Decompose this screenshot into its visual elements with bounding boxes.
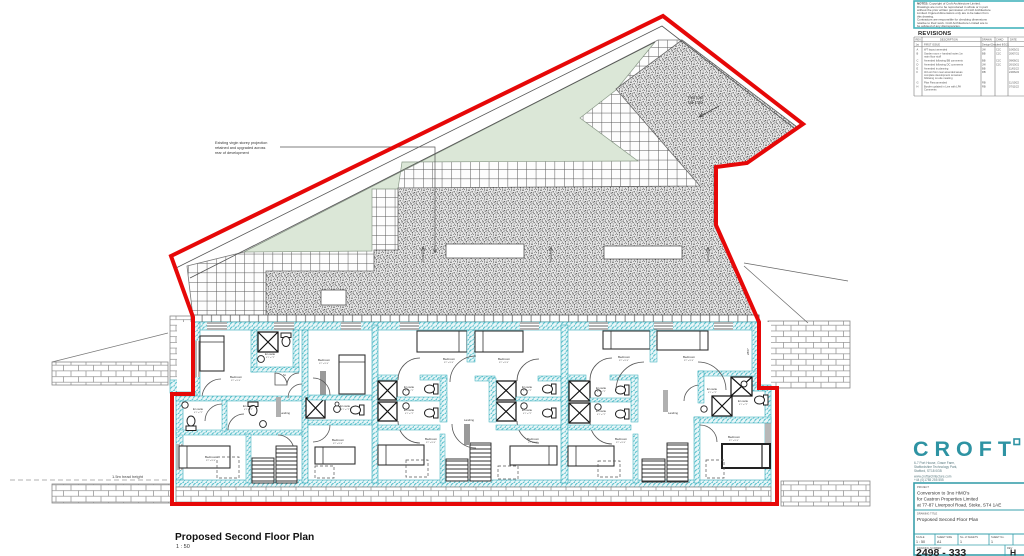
svg-text:DRAWN: DRAWN xyxy=(982,38,992,42)
svg-text:2867: 2867 xyxy=(746,348,750,355)
svg-text:4'1" x 7'2": 4'1" x 7'2" xyxy=(523,390,532,392)
svg-text:4'1" x 7'2": 4'1" x 7'2" xyxy=(405,413,414,415)
svg-text:Bedroom: Bedroom xyxy=(683,355,696,359)
svg-text:En suite: En suite xyxy=(596,386,607,390)
svg-text:Bedroom: Bedroom xyxy=(728,435,741,439)
svg-text:En suite: En suite xyxy=(265,352,276,356)
svg-text:JW: JW xyxy=(982,48,986,52)
svg-text:CHKD: CHKD xyxy=(996,38,1003,42)
svg-text:2498 - 333: 2498 - 333 xyxy=(916,547,966,556)
svg-text:DRAWING TITLE: DRAWING TITLE xyxy=(917,512,937,516)
svg-text:Design/Checked 8/3/21: Design/Checked 8/3/21 xyxy=(982,42,1010,46)
svg-text:9'2" x 11'4": 9'2" x 11'4" xyxy=(528,442,538,444)
svg-text:BB: BB xyxy=(982,59,986,63)
svg-text:DATE: DATE xyxy=(1010,38,1017,42)
svg-text:Bedroom: Bedroom xyxy=(615,437,628,441)
svg-text:4'1" x 7'2": 4'1" x 7'2" xyxy=(597,414,606,416)
svg-text:H: H xyxy=(917,85,919,89)
svg-text:1 : 50: 1 : 50 xyxy=(176,544,190,550)
svg-text:PROJECT: PROJECT xyxy=(917,485,930,489)
svg-text:Existing virgin storey project: Existing virgin storey projection xyxy=(215,141,267,145)
svg-text:4'1" x 7'2": 4'1" x 7'2" xyxy=(266,357,275,359)
svg-text:Bedroom: Bedroom xyxy=(618,355,631,359)
svg-text:Bedroom: Bedroom xyxy=(498,357,511,361)
svg-text:St: St xyxy=(283,373,286,377)
svg-text:CJC: CJC xyxy=(996,48,1001,52)
svg-text:BB: BB xyxy=(982,52,986,56)
svg-text:Proposed Second Floor Plan: Proposed Second Floor Plan xyxy=(175,532,314,543)
svg-text:En suite: En suite xyxy=(243,404,254,408)
svg-text:Amended in planning: Amended in planning xyxy=(924,66,949,70)
svg-text:main floor stuff: main floor stuff xyxy=(924,55,941,59)
svg-text:4'1" x 7'2": 4'1" x 7'2" xyxy=(739,404,748,406)
svg-text:1.5m head height: 1.5m head height xyxy=(112,474,144,479)
svg-text:RB: RB xyxy=(982,85,986,89)
svg-text:Bedroom: Bedroom xyxy=(527,437,540,441)
svg-text:Bedroom: Bedroom xyxy=(425,437,438,441)
svg-text:CJC: CJC xyxy=(996,63,1001,67)
svg-text:be advised of any discrepancie: be advised of any discrepancies. xyxy=(917,24,961,28)
svg-text:1: 1 xyxy=(960,540,962,544)
svg-text:En suite: En suite xyxy=(596,409,607,413)
svg-text:1 : 50: 1 : 50 xyxy=(916,540,925,544)
svg-text:following on-site meeting: following on-site meeting xyxy=(924,76,953,80)
svg-text:RB: RB xyxy=(982,70,986,74)
svg-text:4'1" x 7'2": 4'1" x 7'2" xyxy=(405,390,414,392)
svg-text:En suite: En suite xyxy=(738,399,749,403)
svg-text:9'2" x 11'4": 9'2" x 11'4" xyxy=(499,362,509,364)
svg-text:4'1" x 7'2": 4'1" x 7'2" xyxy=(523,413,532,415)
svg-text:JW: JW xyxy=(982,63,986,67)
svg-text:En suite: En suite xyxy=(404,385,415,389)
svg-text:9'2" x 11'4": 9'2" x 11'4" xyxy=(333,443,343,445)
svg-text:FIRST ISSUE: FIRST ISSUE xyxy=(924,42,940,46)
svg-text:07/11/22: 07/11/22 xyxy=(1009,85,1019,89)
svg-text:CJC: CJC xyxy=(996,52,1001,56)
svg-text:No. of SHEETS: No. of SHEETS xyxy=(960,535,978,539)
svg-text:11/01/22: 11/01/22 xyxy=(1009,66,1019,70)
svg-text:B: B xyxy=(917,52,919,56)
svg-text:4'1" x 7'2": 4'1" x 7'2" xyxy=(597,391,606,393)
svg-text:rear of development: rear of development xyxy=(215,151,250,155)
svg-text:4'1" x 7'2": 4'1" x 7'2" xyxy=(244,409,253,411)
svg-text:4'1" x 7'2": 4'1" x 7'2" xyxy=(341,409,350,411)
svg-text:+44 (0)1785 255 555: +44 (0)1785 255 555 xyxy=(914,478,944,482)
svg-text:Stafford, ST18 0GB: Stafford, ST18 0GB xyxy=(914,469,942,473)
svg-text:A1: A1 xyxy=(937,540,941,544)
svg-text:9'2" x 11'4": 9'2" x 11'4" xyxy=(729,440,739,442)
svg-text:9'2" x 11'4": 9'2" x 11'4" xyxy=(616,442,626,444)
svg-text:for Castron Properties Limited: for Castron Properties Limited xyxy=(917,497,978,502)
svg-text:En suite: En suite xyxy=(404,408,415,412)
svg-text:SCALE: SCALE xyxy=(916,535,925,539)
svg-text:4'1" x 7'2": 4'1" x 7'2" xyxy=(708,392,717,394)
svg-text:En suite: En suite xyxy=(707,387,718,391)
svg-text:1: 1 xyxy=(991,540,993,544)
svg-text:9'2" x 11'4": 9'2" x 11'4" xyxy=(619,360,629,362)
svg-text:4'1" x 7'2": 4'1" x 7'2" xyxy=(194,412,203,414)
svg-text:En suite: En suite xyxy=(340,404,351,408)
svg-text:9'2" x 11'4": 9'2" x 11'4" xyxy=(684,360,694,362)
svg-text:9'2" x 11'4": 9'2" x 11'4" xyxy=(319,363,329,365)
svg-text:DESCRIPTION: DESCRIPTION xyxy=(940,38,958,42)
svg-text:9'2" x 11'4": 9'2" x 11'4" xyxy=(426,442,436,444)
svg-text:26/10/21: 26/10/21 xyxy=(1009,63,1020,67)
svg-text:CJC: CJC xyxy=(996,59,1001,63)
svg-text:9'2" x 11'4": 9'2" x 11'4" xyxy=(206,460,216,462)
svg-text:Landing: Landing xyxy=(668,411,678,415)
svg-text:at 77-87 Liverpool Road, Stoke: at 77-87 Liverpool Road, Stoke, ST4 1AE xyxy=(917,503,1001,508)
svg-text:Bedroom: Bedroom xyxy=(230,375,243,379)
svg-text:C: C xyxy=(917,59,919,63)
svg-text:09/08/21: 09/08/21 xyxy=(1009,59,1020,63)
svg-text:REVISIONS: REVISIONS xyxy=(918,31,951,37)
svg-text:9'2" x 11'4": 9'2" x 11'4" xyxy=(444,362,454,364)
svg-text:Amended following DC comments: Amended following DC comments xyxy=(924,63,964,67)
svg-text:fall 1:80: fall 1:80 xyxy=(688,100,703,105)
svg-text:Bedroom: Bedroom xyxy=(205,455,218,459)
svg-text:Plan Para amended: Plan Para amended xyxy=(924,81,947,85)
svg-text:retained and upgraded across: retained and upgraded across xyxy=(215,146,266,150)
svg-text:CROFT: CROFT xyxy=(913,437,1017,461)
svg-text:10/05/21: 10/05/21 xyxy=(1009,48,1020,52)
svg-text:H: H xyxy=(1010,548,1016,556)
svg-text:Bedroom: Bedroom xyxy=(318,358,331,362)
svg-text:11/10/22: 11/10/22 xyxy=(1009,81,1019,85)
svg-text:Landing: Landing xyxy=(280,411,290,415)
svg-text:Bedroom: Bedroom xyxy=(332,438,345,442)
svg-text:24/06/22: 24/06/22 xyxy=(1009,70,1020,74)
svg-text:9'2" x 11'4": 9'2" x 11'4" xyxy=(231,380,241,382)
svg-text:Amended following BB comments: Amended following BB comments xyxy=(924,59,963,63)
svg-text:Conversion to 3no HMO's: Conversion to 3no HMO's xyxy=(917,491,970,496)
svg-text:SHEET SIZE: SHEET SIZE xyxy=(937,535,952,539)
svg-text:E: E xyxy=(917,66,919,70)
svg-text:En suite: En suite xyxy=(522,408,533,412)
svg-text:1st: 1st xyxy=(916,42,920,46)
svg-text:A: A xyxy=(917,48,919,52)
svg-text:20/07/21: 20/07/21 xyxy=(1009,52,1020,56)
svg-text:D: D xyxy=(917,63,919,67)
svg-text:SHEET No.: SHEET No. xyxy=(991,535,1005,539)
svg-text:En suite: En suite xyxy=(522,385,533,389)
svg-text:Proposed Second Floor Plan: Proposed Second Floor Plan xyxy=(917,517,979,523)
svg-text:REV: REV xyxy=(916,38,922,42)
svg-text:En suite: En suite xyxy=(193,407,204,411)
svg-text:BB: BB xyxy=(982,66,986,70)
svg-text:Bedroom: Bedroom xyxy=(443,357,456,361)
svg-text:G: G xyxy=(917,81,919,85)
svg-text:Landing: Landing xyxy=(464,418,474,422)
svg-text:Comments: Comments xyxy=(924,88,937,92)
svg-text:RB: RB xyxy=(982,81,986,85)
svg-text:WT layout amended: WT layout amended xyxy=(924,48,948,52)
